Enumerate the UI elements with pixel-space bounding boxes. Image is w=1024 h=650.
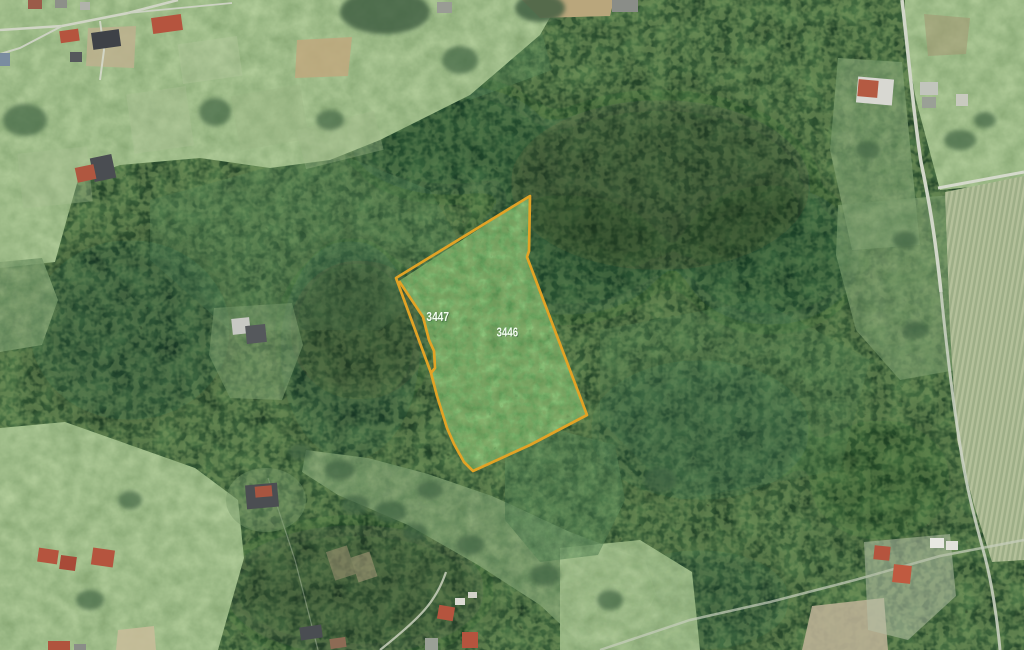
svg-text:3447: 3447 bbox=[426, 310, 449, 324]
svg-text:3446: 3446 bbox=[497, 325, 518, 339]
